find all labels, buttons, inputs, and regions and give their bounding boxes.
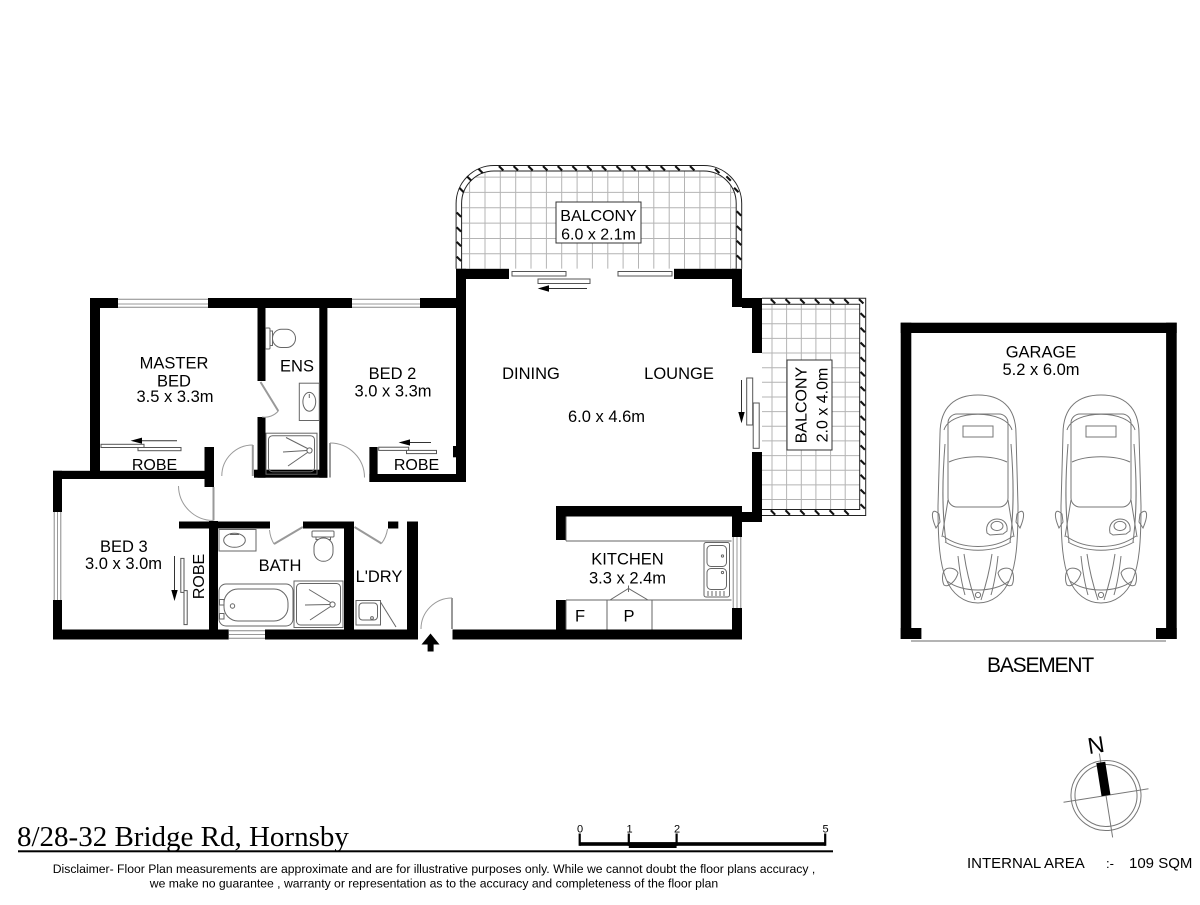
svg-text:GARAGE: GARAGE: [1006, 344, 1077, 362]
svg-text:BALCONY: BALCONY: [794, 366, 811, 443]
svg-text:we make no guarantee , warrant: we make no guarantee , warranty or repre…: [149, 877, 718, 891]
svg-text:3.0 x 3.0m: 3.0 x 3.0m: [85, 555, 162, 573]
svg-text:3.5 x 3.3m: 3.5 x 3.3m: [136, 388, 213, 406]
svg-text:ROBE: ROBE: [191, 554, 208, 599]
svg-text:BED 3: BED 3: [100, 538, 148, 556]
svg-text:BALCONY: BALCONY: [560, 208, 637, 225]
svg-text:BED 2: BED 2: [369, 365, 417, 383]
svg-text:3.0 x 3.3m: 3.0 x 3.3m: [354, 383, 431, 401]
svg-text:BASEMENT: BASEMENT: [987, 654, 1094, 677]
svg-text:Disclaimer- Floor Plan measure: Disclaimer- Floor Plan measurements are …: [53, 862, 816, 876]
svg-text:5: 5: [822, 824, 828, 836]
svg-text:5.2 x 6.0m: 5.2 x 6.0m: [1002, 361, 1079, 379]
svg-text:3.3 x 2.4m: 3.3 x 2.4m: [589, 570, 666, 588]
svg-text:ENS: ENS: [280, 358, 314, 376]
svg-text:2: 2: [674, 824, 680, 836]
svg-text:INTERNAL AREA: INTERNAL AREA: [967, 855, 1085, 872]
svg-text:1: 1: [626, 824, 632, 836]
svg-text:8/28-32 Bridge Rd, Hornsby: 8/28-32 Bridge Rd, Hornsby: [17, 821, 349, 853]
svg-text:BATH: BATH: [259, 557, 302, 575]
svg-text:MASTER: MASTER: [140, 355, 209, 373]
svg-text:L'DRY: L'DRY: [356, 568, 403, 586]
svg-text::-: :-: [1106, 856, 1114, 871]
svg-text:6.0 x 2.1m: 6.0 x 2.1m: [561, 227, 636, 244]
svg-text:KITCHEN: KITCHEN: [591, 551, 663, 569]
svg-text:P: P: [623, 608, 634, 626]
svg-text:ROBE: ROBE: [394, 457, 439, 474]
svg-text:109 SQM: 109 SQM: [1129, 855, 1192, 872]
svg-text:0: 0: [577, 824, 583, 836]
svg-text:F: F: [575, 608, 585, 626]
svg-text:LOUNGE: LOUNGE: [644, 365, 714, 383]
svg-text:ROBE: ROBE: [132, 457, 177, 474]
svg-text:2.0 x 4.0m: 2.0 x 4.0m: [815, 368, 832, 443]
svg-text:6.0 x 4.6m: 6.0 x 4.6m: [568, 408, 645, 426]
svg-text:DINING: DINING: [502, 365, 560, 383]
